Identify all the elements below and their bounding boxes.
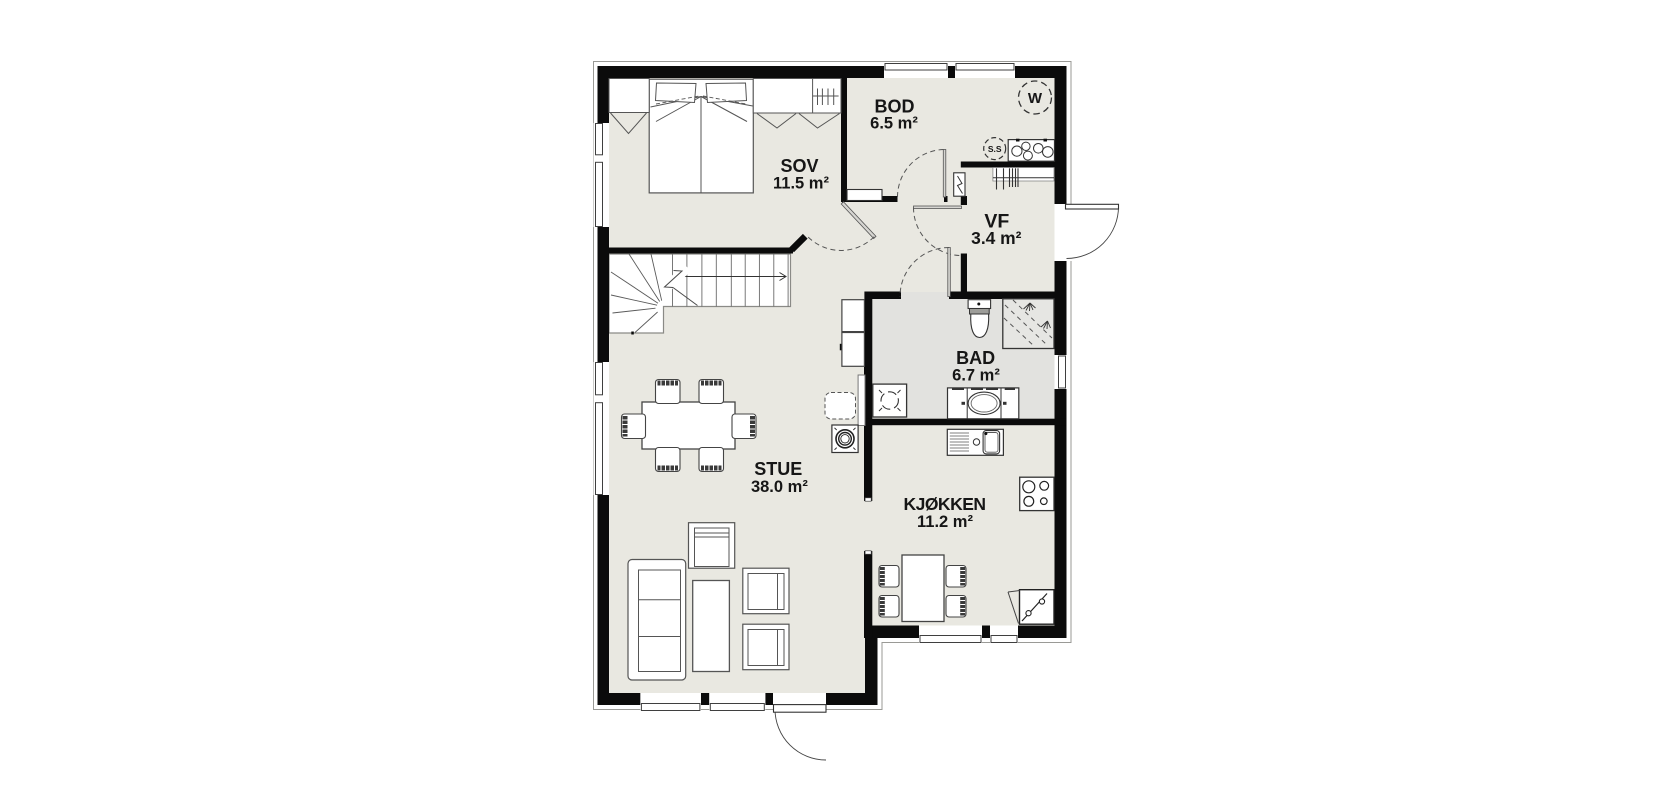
svg-text:BAD: BAD xyxy=(956,348,995,368)
svg-text:11.5 m²: 11.5 m² xyxy=(773,175,829,193)
svg-text:BOD: BOD xyxy=(875,97,915,117)
svg-text:38.0 m²: 38.0 m² xyxy=(751,478,808,496)
svg-text:SOV: SOV xyxy=(780,156,818,176)
svg-text:S.S: S.S xyxy=(988,144,1002,154)
svg-text:6.5 m²: 6.5 m² xyxy=(870,115,918,133)
svg-text:6.7 m²: 6.7 m² xyxy=(952,367,1000,385)
svg-text:STUE: STUE xyxy=(754,459,802,479)
svg-text:11.2 m²: 11.2 m² xyxy=(917,513,973,531)
svg-text:W: W xyxy=(1028,90,1043,107)
svg-text:KJØKKEN: KJØKKEN xyxy=(903,494,985,514)
svg-text:3.4 m²: 3.4 m² xyxy=(971,228,1021,248)
